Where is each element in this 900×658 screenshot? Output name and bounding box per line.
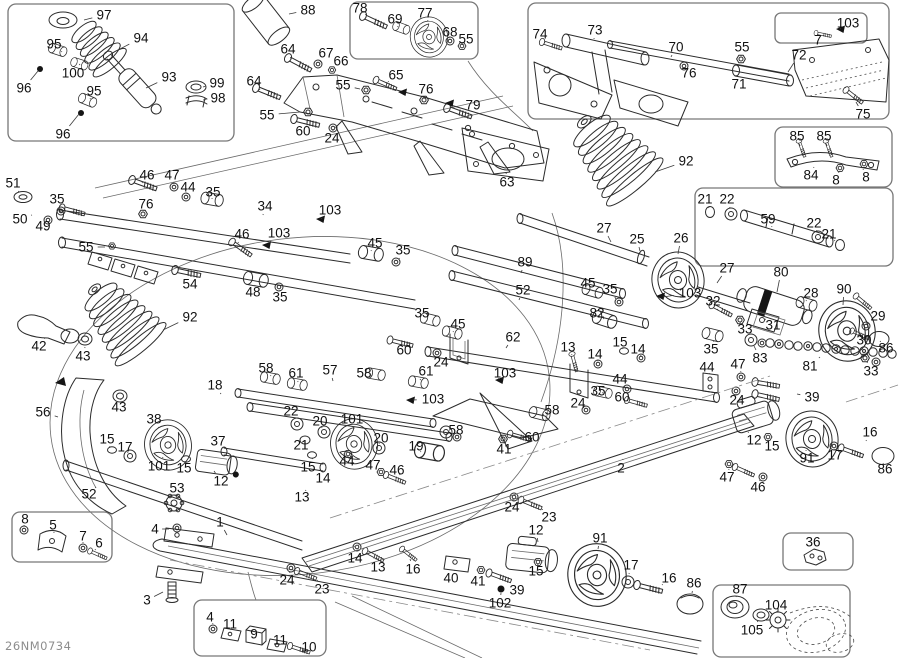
part-label: 6 xyxy=(95,536,103,551)
part-label: 39 xyxy=(509,583,524,598)
part-label: 100 xyxy=(62,66,85,81)
part-label: 24 xyxy=(324,131,340,146)
leader-line xyxy=(544,42,545,43)
part-label: 23 xyxy=(314,582,329,597)
leader-line xyxy=(856,102,858,106)
part-label: 80 xyxy=(773,265,788,280)
part-label: 58 xyxy=(258,361,273,376)
leader-line xyxy=(537,538,538,542)
part-label: 14 xyxy=(315,471,331,486)
part-label: 71 xyxy=(731,77,746,92)
part-label: 74 xyxy=(532,27,548,42)
part-label: 29 xyxy=(870,309,885,324)
leader-line xyxy=(598,546,599,549)
part-label: 15 xyxy=(528,564,543,579)
part-label: 82 xyxy=(589,306,604,321)
part-label: 92 xyxy=(182,310,197,325)
part-label: 103 xyxy=(837,16,860,31)
part-label: 51 xyxy=(5,176,20,191)
leader-line xyxy=(868,323,869,324)
leader-line xyxy=(678,246,680,254)
part-label: 97 xyxy=(96,8,111,23)
part-label: 46 xyxy=(389,463,404,478)
leader-line xyxy=(224,530,227,535)
part-label: 43 xyxy=(111,400,126,415)
part-label: 95 xyxy=(86,84,101,99)
part-label: 81 xyxy=(802,359,817,374)
part-label: 28 xyxy=(803,286,818,301)
part-label: 11 xyxy=(223,617,237,632)
part-label: 35 xyxy=(395,243,410,258)
part-label: 58 xyxy=(544,403,559,418)
part-label: 22 xyxy=(719,192,734,207)
part-label: 47 xyxy=(719,470,734,485)
part-label: 35 xyxy=(272,290,287,305)
leader-line xyxy=(754,346,756,350)
part-label: 47 xyxy=(164,168,179,183)
part-label: 42 xyxy=(31,339,46,354)
part-label: 4 xyxy=(206,610,214,625)
part-label: 103 xyxy=(319,203,342,218)
part-label: 83 xyxy=(752,351,767,366)
part-label: 59 xyxy=(760,212,775,227)
part-label: 99 xyxy=(209,76,224,91)
part-label: 47 xyxy=(730,357,745,372)
part-label: 9 xyxy=(250,627,258,642)
part-label: 1 xyxy=(216,515,224,530)
part-label: 87 xyxy=(732,582,747,597)
part-label: 23 xyxy=(541,510,556,525)
part-label: 44 xyxy=(339,454,355,469)
part-label: 93 xyxy=(161,70,176,85)
leader-line xyxy=(84,18,92,20)
part-label: 47 xyxy=(365,458,380,473)
part-label: 64 xyxy=(246,74,262,89)
part-label: 38 xyxy=(146,412,161,427)
part-label: 32 xyxy=(705,294,720,309)
part-label: 35 xyxy=(703,342,718,357)
leader-line xyxy=(717,309,718,310)
part-label: 16 xyxy=(405,562,420,577)
leader-line xyxy=(69,114,79,126)
part-label: 52 xyxy=(515,283,530,298)
mount-plate-72 xyxy=(793,39,889,102)
leader-line xyxy=(788,63,794,72)
leader-line xyxy=(506,345,508,348)
part-label: 58 xyxy=(448,423,463,438)
part-label: 17 xyxy=(827,448,842,463)
part-label: 79 xyxy=(465,98,480,113)
part-label: 12 xyxy=(213,474,228,489)
bogie-wheels xyxy=(108,415,386,532)
leader-line xyxy=(797,394,800,395)
part-label: 15 xyxy=(612,335,627,350)
part-label: 96 xyxy=(55,127,70,142)
part-label: 18 xyxy=(207,378,222,393)
part-label: 22 xyxy=(806,216,821,231)
part-label: 52 xyxy=(81,487,96,502)
part-label: 24 xyxy=(729,393,745,408)
leader-line xyxy=(55,416,58,417)
part-label: 77 xyxy=(417,6,432,21)
part-label: 55 xyxy=(335,78,350,93)
part-label: 57 xyxy=(322,363,337,378)
part-label: 7 xyxy=(814,33,822,48)
parts-diagram-canvas: 9794951009693999895968864676664556555602… xyxy=(0,0,900,658)
part-label: 13 xyxy=(560,340,575,355)
part-label: 12 xyxy=(528,523,543,538)
leader-line xyxy=(819,357,820,358)
leader-line xyxy=(519,298,520,300)
part-label: 27 xyxy=(719,261,734,276)
part-label: 49 xyxy=(35,219,50,234)
part-label: 55 xyxy=(734,40,749,55)
part-label: 62 xyxy=(505,330,520,345)
leader-line xyxy=(355,88,360,89)
part-label: 72 xyxy=(791,48,806,63)
part-label: 103 xyxy=(494,366,517,381)
part-label: 13 xyxy=(370,560,385,575)
part-label: 98 xyxy=(210,91,225,106)
part-label: 91 xyxy=(799,451,814,466)
part-label: 19 xyxy=(408,439,423,454)
part-label: 65 xyxy=(388,68,403,83)
leader-line xyxy=(608,236,611,242)
part-label: 10 xyxy=(301,640,316,655)
leader-line xyxy=(146,83,157,88)
upper-arm-inset xyxy=(534,26,889,127)
part-label: 5 xyxy=(49,518,57,533)
leader-line xyxy=(717,276,722,283)
part-label: 16 xyxy=(862,425,877,440)
part-label: 8 xyxy=(832,173,840,188)
part-label: 48 xyxy=(245,285,260,300)
part-label: 8 xyxy=(21,512,29,527)
diagram-code: 26NM0734 xyxy=(5,639,71,653)
leader-line xyxy=(639,247,640,251)
part-label: 46 xyxy=(234,227,249,242)
part-label: 60 xyxy=(396,343,411,358)
part-label: 67 xyxy=(318,46,333,61)
coil-spring-92-right xyxy=(554,95,668,211)
part-label: 66 xyxy=(333,54,348,69)
part-label: 102 xyxy=(489,596,512,611)
part-label: 44 xyxy=(180,180,196,195)
part-label: 44 xyxy=(612,372,628,387)
part-label: 3 xyxy=(143,593,151,608)
part-label: 63 xyxy=(499,175,514,190)
part-label: 37 xyxy=(210,434,225,449)
leader-line xyxy=(420,379,421,380)
part-label: 95 xyxy=(46,37,61,52)
leader-line xyxy=(154,592,163,597)
part-label: 68 xyxy=(442,25,457,40)
part-label: 7 xyxy=(79,529,87,544)
part-label: 24 xyxy=(433,355,449,370)
part-label: 24 xyxy=(279,573,295,588)
part-label: 96 xyxy=(16,81,31,96)
part-label: 84 xyxy=(803,168,819,183)
part-label: 21 xyxy=(697,192,712,207)
leader-line xyxy=(332,378,333,381)
part-label: 45 xyxy=(367,236,382,251)
part-label: 75 xyxy=(855,107,870,122)
part-label: 78 xyxy=(352,1,367,16)
part-label: 60 xyxy=(614,390,629,405)
part-label: 90 xyxy=(836,282,851,297)
part-label: 60 xyxy=(524,430,539,445)
part-label: 24 xyxy=(504,500,520,515)
part-label: 64 xyxy=(280,42,296,57)
part-label: 61 xyxy=(418,364,433,379)
leader-line xyxy=(843,297,844,305)
part-label: 61 xyxy=(288,366,303,381)
part-label: 91 xyxy=(592,531,607,546)
part-label: 30 xyxy=(856,333,871,348)
part-label: 36 xyxy=(805,535,820,550)
part-label: 17 xyxy=(623,558,638,573)
part-label: 41 xyxy=(470,574,485,589)
part-label: 69 xyxy=(387,12,402,27)
part-label: 88 xyxy=(300,3,315,18)
part-label: 70 xyxy=(668,40,683,55)
background-frame-lines xyxy=(30,61,898,658)
part-label: 86 xyxy=(877,462,892,477)
part-label: 85 xyxy=(789,129,804,144)
part-label: 45 xyxy=(580,276,595,291)
part-label: 27 xyxy=(596,221,611,236)
part-label: 2 xyxy=(617,461,625,476)
part-label: 35 xyxy=(49,192,64,207)
leader-line xyxy=(220,393,221,394)
leader-line xyxy=(203,86,205,87)
part-label: 35 xyxy=(590,384,605,399)
part-label: 60 xyxy=(295,124,310,139)
part-label: 40 xyxy=(443,571,458,586)
part-label: 35 xyxy=(602,282,617,297)
left-spring-area xyxy=(18,265,170,402)
part-label: 15 xyxy=(99,432,114,447)
part-label: 25 xyxy=(629,232,644,247)
part-label: 20 xyxy=(312,414,327,429)
shock-body-93 xyxy=(99,47,167,119)
part-label: 4 xyxy=(151,522,159,537)
part-label: 15 xyxy=(300,460,315,475)
part-label: 22 xyxy=(283,404,298,419)
part-label: 104 xyxy=(765,598,788,613)
part-label: 103 xyxy=(679,286,702,301)
part-label: 76 xyxy=(138,197,153,212)
leader-line xyxy=(289,13,296,15)
part-label: 55 xyxy=(78,240,93,255)
part-label: 21 xyxy=(821,227,836,242)
part-label: 85 xyxy=(816,129,831,144)
part-label: 31 xyxy=(765,318,780,333)
part-label: 20 xyxy=(373,431,388,446)
leader-line xyxy=(158,427,159,428)
part-label: 58 xyxy=(356,366,371,381)
part-label: 94 xyxy=(133,31,149,46)
part-label: 34 xyxy=(257,199,273,214)
part-label: 8 xyxy=(862,170,870,185)
leader-line xyxy=(671,55,672,57)
part-label: 12 xyxy=(746,433,761,448)
leader-line xyxy=(290,57,291,59)
part-label: 105 xyxy=(741,623,764,638)
part-label: 15 xyxy=(764,439,779,454)
part-label: 54 xyxy=(182,277,198,292)
leader-line xyxy=(259,89,260,90)
part-label: 17 xyxy=(117,440,132,455)
part-label: 13 xyxy=(294,490,309,505)
part-label: 50 xyxy=(12,212,27,227)
part-label: 53 xyxy=(169,481,184,496)
part-label: 101 xyxy=(341,412,364,427)
part-label: 35 xyxy=(414,306,429,321)
part-label: 55 xyxy=(458,32,473,47)
part-label: 44 xyxy=(699,360,715,375)
part-label: 14 xyxy=(630,342,646,357)
part-label: 73 xyxy=(587,23,602,38)
part-label: 46 xyxy=(139,168,154,183)
part-label: 11 xyxy=(273,633,287,648)
part-label: 56 xyxy=(35,405,50,420)
part-label: 43 xyxy=(75,349,90,364)
part-label: 103 xyxy=(268,226,291,241)
part-label: 45 xyxy=(450,317,465,332)
clamp-inset xyxy=(804,549,826,565)
part-label: 33 xyxy=(737,322,752,337)
part-label: 92 xyxy=(678,154,693,169)
part-label: 26 xyxy=(673,231,688,246)
part-label: 76 xyxy=(681,66,696,81)
part-label: 14 xyxy=(587,347,603,362)
part-label: 89 xyxy=(517,255,532,270)
part-label: 101 xyxy=(148,459,171,474)
leader-line xyxy=(31,71,38,80)
part-label: 16 xyxy=(661,571,676,586)
part-label: 24 xyxy=(570,396,586,411)
leader-line xyxy=(463,111,464,112)
part-label: 76 xyxy=(418,82,433,97)
leader-line xyxy=(777,280,779,292)
part-label: 86 xyxy=(878,341,893,356)
part-label: 103 xyxy=(422,392,445,407)
part-label: 15 xyxy=(176,461,191,476)
part-label: 46 xyxy=(750,480,765,495)
part-label: 55 xyxy=(259,108,274,123)
leader-line xyxy=(279,112,300,114)
part-label: 41 xyxy=(496,442,511,457)
part-label: 21 xyxy=(293,438,308,453)
part-label: 39 xyxy=(804,390,819,405)
part-label: 33 xyxy=(863,364,878,379)
leader-line xyxy=(615,297,616,299)
part-label: 14 xyxy=(347,551,363,566)
leader-line xyxy=(823,35,824,36)
part-label: 86 xyxy=(686,576,701,591)
part-label: 35 xyxy=(205,185,220,200)
